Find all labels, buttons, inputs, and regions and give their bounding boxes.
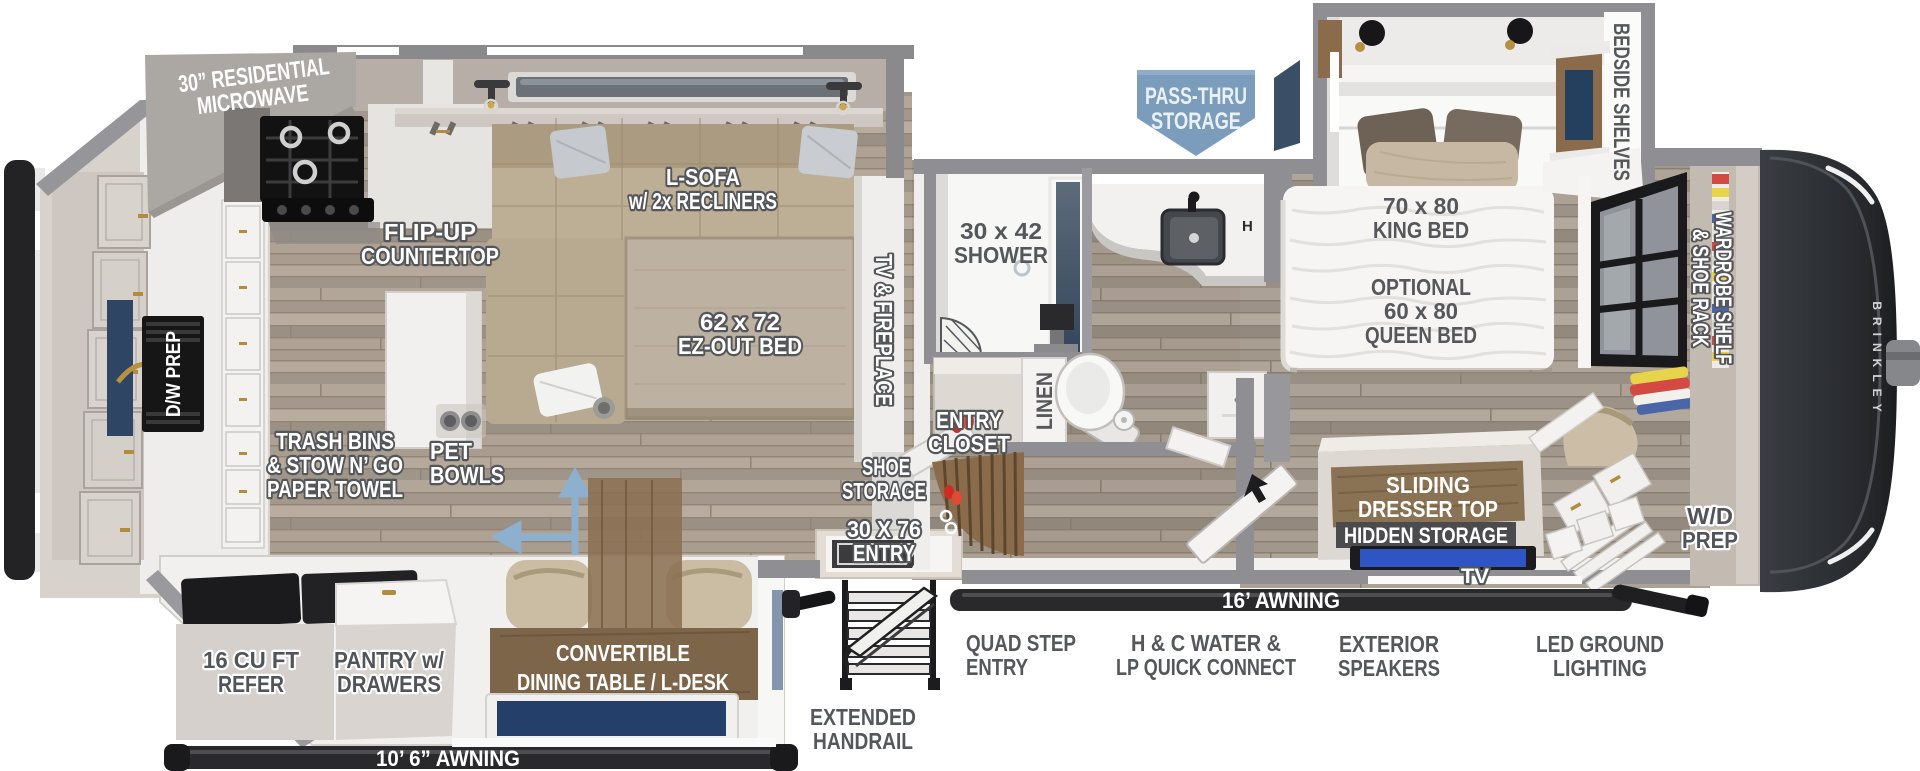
svg-text:H & C WATER &: H & C WATER &: [1131, 630, 1281, 656]
svg-text:DRAWERS: DRAWERS: [337, 671, 441, 697]
svg-text:PASS-THRU: PASS-THRU: [1145, 83, 1247, 110]
svg-text:PANTRY w/: PANTRY w/: [334, 647, 445, 673]
svg-text:BOWLS: BOWLS: [430, 462, 504, 488]
svg-text:EXTENDED: EXTENDED: [810, 704, 916, 730]
svg-text:LIGHTING: LIGHTING: [1553, 655, 1647, 681]
svg-text:TRASH BINS: TRASH BINS: [276, 428, 394, 454]
svg-text:LINEN: LINEN: [1032, 372, 1057, 430]
svg-text:SLIDING: SLIDING: [1386, 472, 1470, 498]
svg-text:30 X 76: 30 X 76: [847, 516, 921, 542]
svg-text:QUEEN BED: QUEEN BED: [1365, 322, 1477, 348]
svg-text:FLIP-UP: FLIP-UP: [384, 219, 476, 245]
svg-text:16’ AWNING: 16’ AWNING: [1222, 588, 1340, 613]
svg-text:EXTERIOR: EXTERIOR: [1339, 631, 1439, 657]
svg-text:D/W PREP: D/W PREP: [163, 331, 185, 417]
svg-text:HANDRAIL: HANDRAIL: [813, 728, 913, 754]
svg-text:CLOSET: CLOSET: [928, 431, 1010, 457]
svg-text:10’ 6” AWNING: 10’ 6” AWNING: [376, 746, 520, 771]
svg-text:EZ-OUT BED: EZ-OUT BED: [678, 333, 802, 359]
svg-text:PET: PET: [430, 438, 472, 464]
svg-text:WARDROBE SHELF: WARDROBE SHELF: [1711, 212, 1736, 364]
svg-text:OPTIONAL: OPTIONAL: [1371, 274, 1471, 300]
svg-text:PREP: PREP: [1682, 527, 1738, 553]
svg-text:REFER: REFER: [218, 671, 284, 697]
svg-text:60 x 80: 60 x 80: [1384, 298, 1458, 324]
svg-text:SHOWER: SHOWER: [954, 242, 1048, 268]
svg-text:COUNTERTOP: COUNTERTOP: [361, 243, 499, 269]
svg-text:H: H: [1242, 218, 1253, 235]
svg-text:70 x 80: 70 x 80: [1383, 193, 1459, 219]
svg-text:KING BED: KING BED: [1373, 217, 1469, 243]
svg-text:ENTRY: ENTRY: [853, 540, 915, 566]
svg-text:62 x 72: 62 x 72: [700, 309, 780, 335]
svg-text:16 CU FT: 16 CU FT: [203, 647, 299, 673]
svg-text:BEDSIDE SHELVES: BEDSIDE SHELVES: [1609, 23, 1634, 181]
svg-text:BRINKLEY: BRINKLEY: [1870, 301, 1884, 418]
svg-text:QUAD STEP: QUAD STEP: [966, 630, 1076, 656]
svg-text:L-SOFA: L-SOFA: [666, 164, 740, 190]
svg-text:TV: TV: [1461, 565, 1489, 588]
svg-text:CONVERTIBLE: CONVERTIBLE: [556, 640, 690, 666]
svg-text:30 x 42: 30 x 42: [960, 218, 1042, 244]
svg-text:SHOE: SHOE: [862, 454, 910, 480]
svg-text:& STOW N’ GO: & STOW N’ GO: [267, 452, 403, 478]
svg-text:DINING TABLE / L-DESK: DINING TABLE / L-DESK: [517, 669, 729, 695]
svg-text:STORAGE: STORAGE: [842, 478, 926, 504]
svg-text:LED GROUND: LED GROUND: [1536, 631, 1664, 657]
svg-text:ENTRY: ENTRY: [966, 654, 1028, 680]
svg-text:HIDDEN STORAGE: HIDDEN STORAGE: [1344, 523, 1508, 548]
svg-text:& SHOE RACK: & SHOE RACK: [1688, 229, 1713, 347]
svg-text:w/ 2x RECLINERS: w/ 2x RECLINERS: [628, 188, 777, 214]
svg-text:TV & FIREPLACE: TV & FIREPLACE: [871, 254, 897, 406]
svg-text:ENTRY: ENTRY: [936, 407, 1002, 433]
svg-text:LP QUICK CONNECT: LP QUICK CONNECT: [1116, 654, 1296, 680]
svg-text:STORAGE: STORAGE: [1151, 108, 1241, 135]
svg-text:SPEAKERS: SPEAKERS: [1338, 655, 1440, 681]
svg-text:W/D: W/D: [1687, 503, 1733, 529]
svg-text:PAPER TOWEL: PAPER TOWEL: [267, 476, 403, 502]
svg-text:DRESSER TOP: DRESSER TOP: [1358, 496, 1498, 522]
